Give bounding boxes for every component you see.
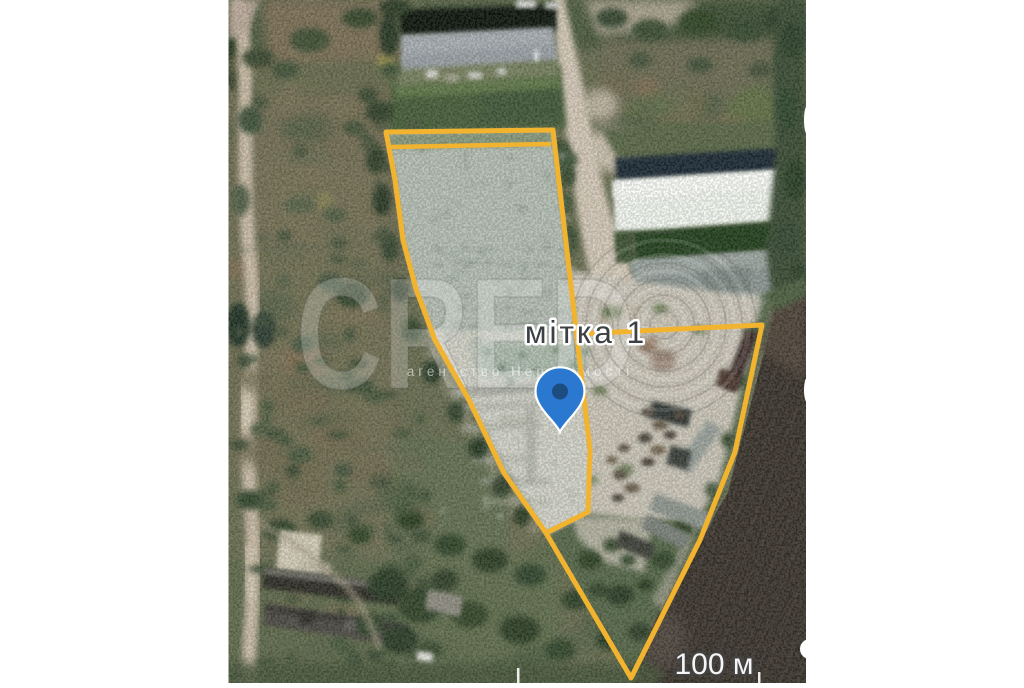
svg-text:агентство Нерухомості: агентство Нерухомості	[407, 364, 634, 379]
svg-text:100 м: 100 м	[674, 648, 753, 681]
svg-text:мітка 1: мітка 1	[525, 314, 647, 350]
